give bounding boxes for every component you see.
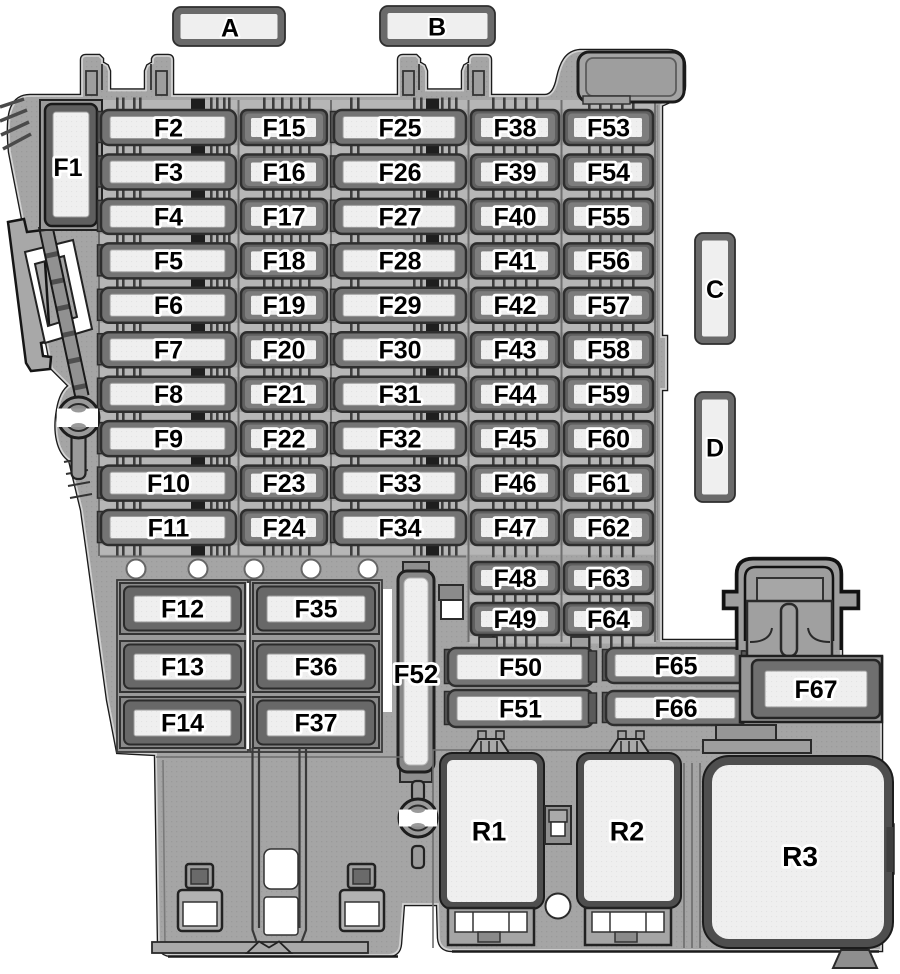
svg-text:F10: F10 xyxy=(147,470,190,498)
svg-text:F65: F65 xyxy=(654,652,697,680)
svg-text:F44: F44 xyxy=(493,381,536,409)
svg-text:F35: F35 xyxy=(294,595,337,623)
svg-text:F27: F27 xyxy=(378,203,421,231)
svg-text:F34: F34 xyxy=(378,514,421,542)
svg-text:F53: F53 xyxy=(587,114,630,142)
svg-text:F37: F37 xyxy=(294,709,337,737)
svg-text:F67: F67 xyxy=(794,676,837,704)
svg-text:F20: F20 xyxy=(262,337,305,365)
svg-text:R1: R1 xyxy=(472,817,507,847)
svg-text:F18: F18 xyxy=(262,248,305,276)
svg-text:F15: F15 xyxy=(262,114,305,142)
svg-text:F38: F38 xyxy=(493,114,536,142)
svg-text:F59: F59 xyxy=(587,381,630,409)
svg-text:B: B xyxy=(428,13,446,41)
svg-text:F21: F21 xyxy=(262,381,305,409)
svg-text:F25: F25 xyxy=(378,114,421,142)
svg-text:F9: F9 xyxy=(154,426,183,454)
svg-text:F49: F49 xyxy=(493,606,536,634)
svg-text:F33: F33 xyxy=(378,470,421,498)
svg-text:F12: F12 xyxy=(161,595,204,623)
svg-text:F26: F26 xyxy=(378,159,421,187)
svg-text:F30: F30 xyxy=(378,337,421,365)
svg-text:F52: F52 xyxy=(394,659,439,689)
svg-text:R2: R2 xyxy=(610,817,645,847)
svg-text:F42: F42 xyxy=(493,292,536,320)
svg-text:F40: F40 xyxy=(493,203,536,231)
svg-text:F5: F5 xyxy=(154,248,183,276)
svg-text:F57: F57 xyxy=(587,292,630,320)
svg-text:D: D xyxy=(706,434,724,462)
svg-text:C: C xyxy=(706,276,724,304)
svg-text:F50: F50 xyxy=(499,654,542,682)
svg-text:F1: F1 xyxy=(53,154,82,182)
svg-text:F6: F6 xyxy=(154,292,183,320)
svg-text:F28: F28 xyxy=(378,248,421,276)
svg-text:F36: F36 xyxy=(294,653,337,681)
svg-text:F45: F45 xyxy=(493,426,536,454)
svg-text:F3: F3 xyxy=(154,159,183,187)
svg-text:F56: F56 xyxy=(587,248,630,276)
svg-text:F11: F11 xyxy=(148,514,190,542)
svg-text:F7: F7 xyxy=(154,337,183,365)
svg-text:F46: F46 xyxy=(493,470,536,498)
svg-text:F43: F43 xyxy=(493,337,536,365)
svg-text:F14: F14 xyxy=(161,709,204,737)
svg-text:F23: F23 xyxy=(262,470,305,498)
svg-text:F22: F22 xyxy=(262,426,305,454)
svg-text:F13: F13 xyxy=(161,653,204,681)
svg-text:F2: F2 xyxy=(154,114,183,142)
svg-text:F4: F4 xyxy=(154,203,183,231)
svg-text:F32: F32 xyxy=(378,426,421,454)
svg-text:F17: F17 xyxy=(262,203,305,231)
svg-text:F62: F62 xyxy=(587,514,630,542)
svg-text:F66: F66 xyxy=(654,695,697,723)
svg-text:F8: F8 xyxy=(154,381,183,409)
svg-text:F54: F54 xyxy=(587,159,630,187)
svg-text:F24: F24 xyxy=(262,514,305,542)
svg-text:F64: F64 xyxy=(587,606,630,634)
svg-text:F61: F61 xyxy=(587,470,630,498)
svg-text:F16: F16 xyxy=(262,159,305,187)
svg-text:F39: F39 xyxy=(493,159,536,187)
svg-text:F55: F55 xyxy=(587,203,630,231)
svg-text:F31: F31 xyxy=(378,381,421,409)
svg-text:F29: F29 xyxy=(378,292,421,320)
svg-text:F19: F19 xyxy=(262,292,305,320)
svg-text:R3: R3 xyxy=(782,841,818,872)
svg-text:F51: F51 xyxy=(499,695,542,723)
svg-text:F41: F41 xyxy=(493,248,536,276)
svg-text:F58: F58 xyxy=(587,337,630,365)
svg-text:F63: F63 xyxy=(587,565,630,593)
svg-text:F47: F47 xyxy=(493,514,536,542)
svg-text:A: A xyxy=(221,14,239,42)
svg-text:F48: F48 xyxy=(493,565,536,593)
svg-text:F60: F60 xyxy=(587,426,630,454)
